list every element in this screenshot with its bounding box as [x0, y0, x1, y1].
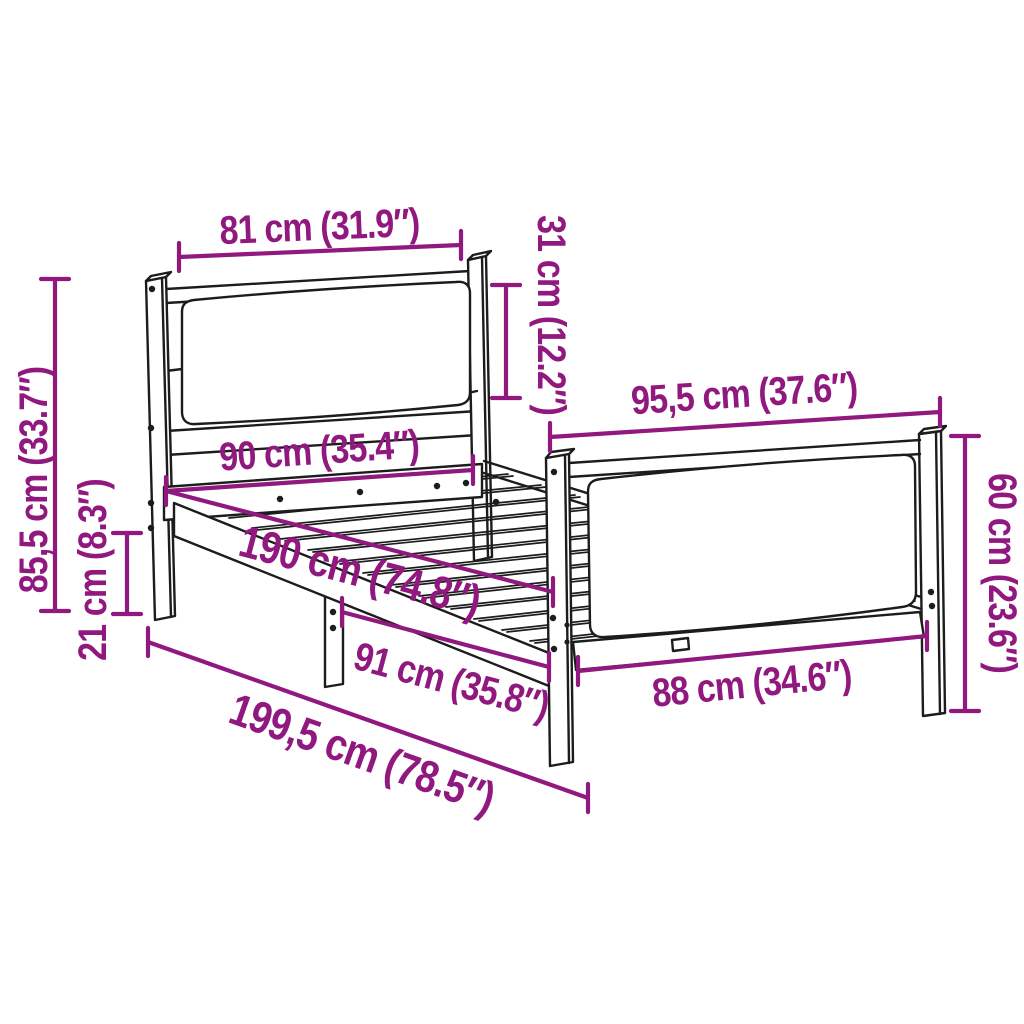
footboard-cushion	[588, 455, 916, 637]
dim-under-bed-clearance: 21 cm (8.3″)	[69, 479, 141, 661]
dim-headboard-width: 81 cm (31.9″)	[179, 199, 461, 271]
dim-footboard-width: 95,5 cm (37.6″)	[550, 363, 940, 451]
dim-headboard-panel-height: 31 cm (12.2″)	[492, 215, 575, 415]
dim-label-footboard-height: 60 cm (23.6″)	[980, 473, 1024, 673]
product-image: 81 cm (31.9″) 31 cm (12.2″) 85,5 cm (33.…	[0, 0, 1024, 1024]
footboard-far-post	[919, 431, 945, 716]
bed-frame-dimension-diagram: 81 cm (31.9″) 31 cm (12.2″) 85,5 cm (33.…	[0, 0, 1024, 1024]
dim-label-under-bed-clearance: 21 cm (8.3″)	[69, 479, 114, 661]
dim-label-footboard-width: 95,5 cm (37.6″)	[630, 363, 859, 423]
headboard-right-post	[468, 256, 492, 561]
dim-label-headboard-width: 81 cm (31.9″)	[219, 199, 421, 253]
dim-footboard-height: 60 cm (23.6″)	[951, 436, 1024, 711]
footboard	[546, 426, 946, 766]
dim-headboard-height: 85,5 cm (33.7″)	[10, 279, 69, 611]
dim-label-headboard-panel-height: 31 cm (12.2″)	[529, 215, 574, 415]
footboard-rail-tab	[672, 638, 689, 651]
headboard-cushion	[182, 282, 470, 424]
headboard-right-post-cap	[468, 251, 491, 260]
dim-label-headboard-height: 85,5 cm (33.7″)	[10, 367, 55, 593]
